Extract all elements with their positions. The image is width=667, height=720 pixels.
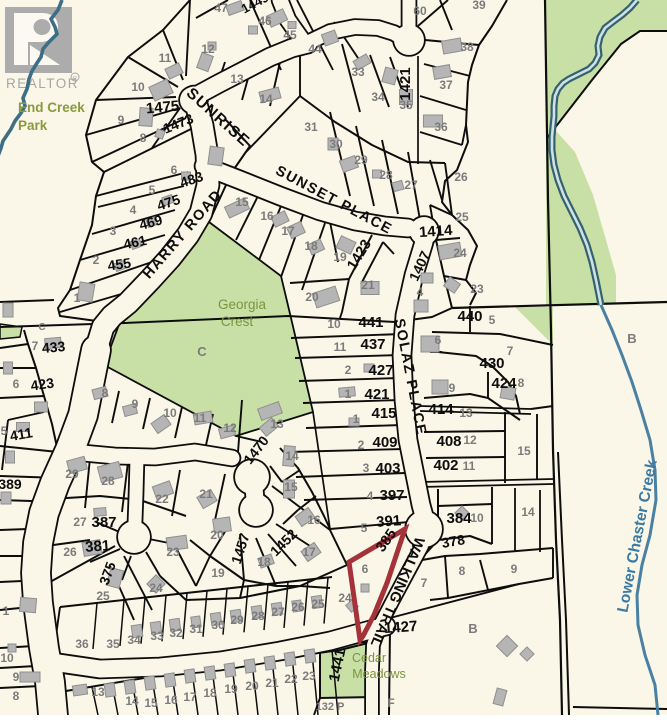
svg-text:31: 31 <box>304 120 318 134</box>
svg-text:2: 2 <box>345 363 352 377</box>
svg-text:1421: 1421 <box>397 67 414 100</box>
svg-text:6: 6 <box>171 163 178 177</box>
svg-text:21: 21 <box>199 487 213 501</box>
svg-text:8: 8 <box>102 386 109 400</box>
svg-text:17: 17 <box>183 690 197 704</box>
svg-text:10: 10 <box>0 651 14 665</box>
svg-text:45: 45 <box>283 28 297 42</box>
svg-text:430: 430 <box>479 355 504 372</box>
svg-text:22: 22 <box>284 672 298 686</box>
svg-text:414: 414 <box>428 401 454 418</box>
svg-text:10: 10 <box>163 406 177 420</box>
svg-text:9: 9 <box>511 562 518 576</box>
svg-text:1: 1 <box>353 412 360 426</box>
svg-text:389: 389 <box>0 476 22 492</box>
svg-text:1: 1 <box>345 387 352 401</box>
svg-text:26: 26 <box>454 170 468 184</box>
svg-text:21: 21 <box>361 278 375 292</box>
svg-text:5: 5 <box>149 183 156 197</box>
svg-text:441: 441 <box>358 314 383 331</box>
svg-text:384: 384 <box>446 510 472 527</box>
svg-text:3: 3 <box>110 224 117 238</box>
svg-text:12: 12 <box>463 433 477 447</box>
svg-text:17: 17 <box>281 224 295 238</box>
svg-text:3: 3 <box>363 461 370 475</box>
svg-text:9: 9 <box>13 670 20 684</box>
svg-text:39: 39 <box>472 0 486 12</box>
svg-text:423: 423 <box>30 374 56 393</box>
svg-text:31: 31 <box>189 622 203 636</box>
svg-text:B: B <box>627 331 636 346</box>
svg-text:8: 8 <box>13 689 20 703</box>
svg-text:19: 19 <box>224 682 238 696</box>
svg-text:440: 440 <box>457 308 482 325</box>
svg-text:11: 11 <box>194 411 207 425</box>
svg-text:11: 11 <box>334 340 347 354</box>
svg-text:6: 6 <box>13 377 20 391</box>
svg-text:9: 9 <box>118 113 125 127</box>
svg-text:60: 60 <box>413 4 427 18</box>
svg-text:18: 18 <box>257 555 271 569</box>
svg-text:5: 5 <box>489 313 496 327</box>
svg-text:25: 25 <box>96 589 110 603</box>
svg-text:Meadows: Meadows <box>352 667 406 681</box>
svg-text:11: 11 <box>159 51 172 65</box>
svg-text:15: 15 <box>235 195 249 209</box>
svg-text:Park: Park <box>18 118 48 133</box>
svg-text:14: 14 <box>521 505 535 519</box>
svg-text:23: 23 <box>470 282 484 296</box>
svg-text:15: 15 <box>144 696 158 710</box>
svg-text:R: R <box>73 76 77 82</box>
svg-text:2: 2 <box>358 438 365 452</box>
svg-text:27: 27 <box>73 515 87 529</box>
svg-text:C: C <box>38 322 45 333</box>
svg-text:24: 24 <box>149 581 163 595</box>
svg-text:14: 14 <box>285 449 299 463</box>
svg-text:19: 19 <box>333 250 347 264</box>
svg-text:421: 421 <box>364 386 389 403</box>
svg-text:1: 1 <box>3 604 10 618</box>
svg-text:397: 397 <box>379 487 404 504</box>
svg-text:34: 34 <box>371 90 385 104</box>
svg-text:Crest: Crest <box>221 314 254 329</box>
svg-text:427: 427 <box>368 362 393 379</box>
svg-text:8: 8 <box>459 564 466 578</box>
svg-text:33: 33 <box>150 629 164 643</box>
svg-text:End Creek: End Creek <box>18 100 85 115</box>
svg-text:12: 12 <box>223 421 237 435</box>
svg-text:437: 437 <box>360 336 385 353</box>
svg-text:13: 13 <box>459 406 473 420</box>
svg-text:25: 25 <box>455 210 469 224</box>
svg-text:15: 15 <box>284 480 298 494</box>
svg-text:18: 18 <box>304 239 318 253</box>
svg-text:9: 9 <box>132 397 139 411</box>
svg-text:20: 20 <box>305 290 319 304</box>
svg-text:24: 24 <box>338 591 352 605</box>
svg-text:16: 16 <box>164 693 178 707</box>
svg-text:6: 6 <box>435 333 442 347</box>
svg-text:26: 26 <box>291 600 305 614</box>
svg-text:27: 27 <box>271 605 285 619</box>
svg-text:5: 5 <box>1 424 8 438</box>
svg-text:16: 16 <box>307 513 321 527</box>
svg-text:10: 10 <box>327 317 341 331</box>
svg-text:20: 20 <box>245 679 259 693</box>
svg-text:38: 38 <box>460 40 474 54</box>
svg-text:408: 408 <box>436 433 461 450</box>
svg-text:10: 10 <box>131 80 145 94</box>
svg-text:28: 28 <box>101 474 115 488</box>
svg-text:15: 15 <box>517 444 531 458</box>
svg-text:8: 8 <box>140 131 147 145</box>
svg-text:23: 23 <box>302 669 316 683</box>
svg-text:14: 14 <box>125 694 139 708</box>
svg-text:46: 46 <box>258 14 272 28</box>
svg-text:1427: 1427 <box>383 618 417 637</box>
svg-text:32: 32 <box>169 626 183 640</box>
svg-text:37: 37 <box>439 78 453 92</box>
svg-text:34: 34 <box>127 633 141 647</box>
svg-text:F: F <box>387 696 394 710</box>
svg-text:4: 4 <box>367 489 374 503</box>
svg-text:30: 30 <box>329 137 343 151</box>
svg-text:13: 13 <box>270 417 284 431</box>
svg-text:2: 2 <box>93 253 100 267</box>
svg-text:18: 18 <box>203 686 217 700</box>
svg-text:455: 455 <box>107 254 133 273</box>
svg-text:35: 35 <box>106 637 120 651</box>
svg-text:26: 26 <box>63 545 77 559</box>
svg-text:12: 12 <box>201 42 215 56</box>
svg-text:13: 13 <box>91 685 105 699</box>
svg-text:403: 403 <box>375 460 400 477</box>
svg-text:381: 381 <box>85 537 111 556</box>
svg-text:16: 16 <box>260 209 274 223</box>
svg-text:13: 13 <box>230 72 244 86</box>
svg-text:22: 22 <box>155 492 169 506</box>
svg-text:35: 35 <box>399 98 413 112</box>
svg-text:44: 44 <box>308 42 322 56</box>
svg-text:409: 409 <box>372 434 397 451</box>
svg-text:387: 387 <box>91 514 116 531</box>
svg-text:1: 1 <box>74 291 81 305</box>
svg-text:29: 29 <box>230 613 244 627</box>
svg-text:4: 4 <box>130 203 137 217</box>
svg-text:132 P: 132 P <box>316 701 345 713</box>
svg-text:5: 5 <box>361 521 368 535</box>
svg-text:4: 4 <box>417 285 424 299</box>
svg-text:36: 36 <box>434 120 448 134</box>
svg-text:7: 7 <box>32 339 39 353</box>
svg-text:19: 19 <box>211 566 225 580</box>
svg-text:B: B <box>468 621 477 636</box>
svg-text:21: 21 <box>265 676 279 690</box>
svg-text:33: 33 <box>351 65 365 79</box>
svg-text:9: 9 <box>449 381 456 395</box>
svg-text:27: 27 <box>404 178 418 192</box>
svg-text:7: 7 <box>421 576 428 590</box>
svg-text:28: 28 <box>379 168 393 182</box>
svg-text:14: 14 <box>259 92 273 106</box>
svg-text:REALTOR: REALTOR <box>6 76 79 91</box>
svg-text:30: 30 <box>211 618 225 632</box>
svg-text:36: 36 <box>75 637 89 651</box>
svg-text:23: 23 <box>166 545 180 559</box>
svg-text:1414: 1414 <box>418 222 453 241</box>
svg-text:433: 433 <box>41 338 66 356</box>
svg-text:29: 29 <box>354 153 368 167</box>
svg-text:7: 7 <box>507 344 514 358</box>
svg-text:11: 11 <box>463 459 476 473</box>
svg-text:Georgia: Georgia <box>218 297 267 312</box>
svg-text:28: 28 <box>251 609 265 623</box>
svg-text:47: 47 <box>214 1 228 15</box>
svg-text:10: 10 <box>470 511 484 525</box>
svg-text:24: 24 <box>453 246 467 260</box>
svg-text:29: 29 <box>65 467 79 481</box>
svg-text:8: 8 <box>518 376 525 390</box>
svg-text:6: 6 <box>362 562 369 576</box>
svg-text:25: 25 <box>311 597 325 611</box>
svg-text:20: 20 <box>210 528 224 542</box>
svg-text:1475: 1475 <box>145 98 180 118</box>
svg-text:424: 424 <box>491 375 517 392</box>
svg-text:402: 402 <box>433 457 458 474</box>
svg-text:Cedar: Cedar <box>352 651 386 665</box>
svg-text:C: C <box>197 344 207 359</box>
svg-text:415: 415 <box>371 405 396 422</box>
svg-text:17: 17 <box>302 545 316 559</box>
